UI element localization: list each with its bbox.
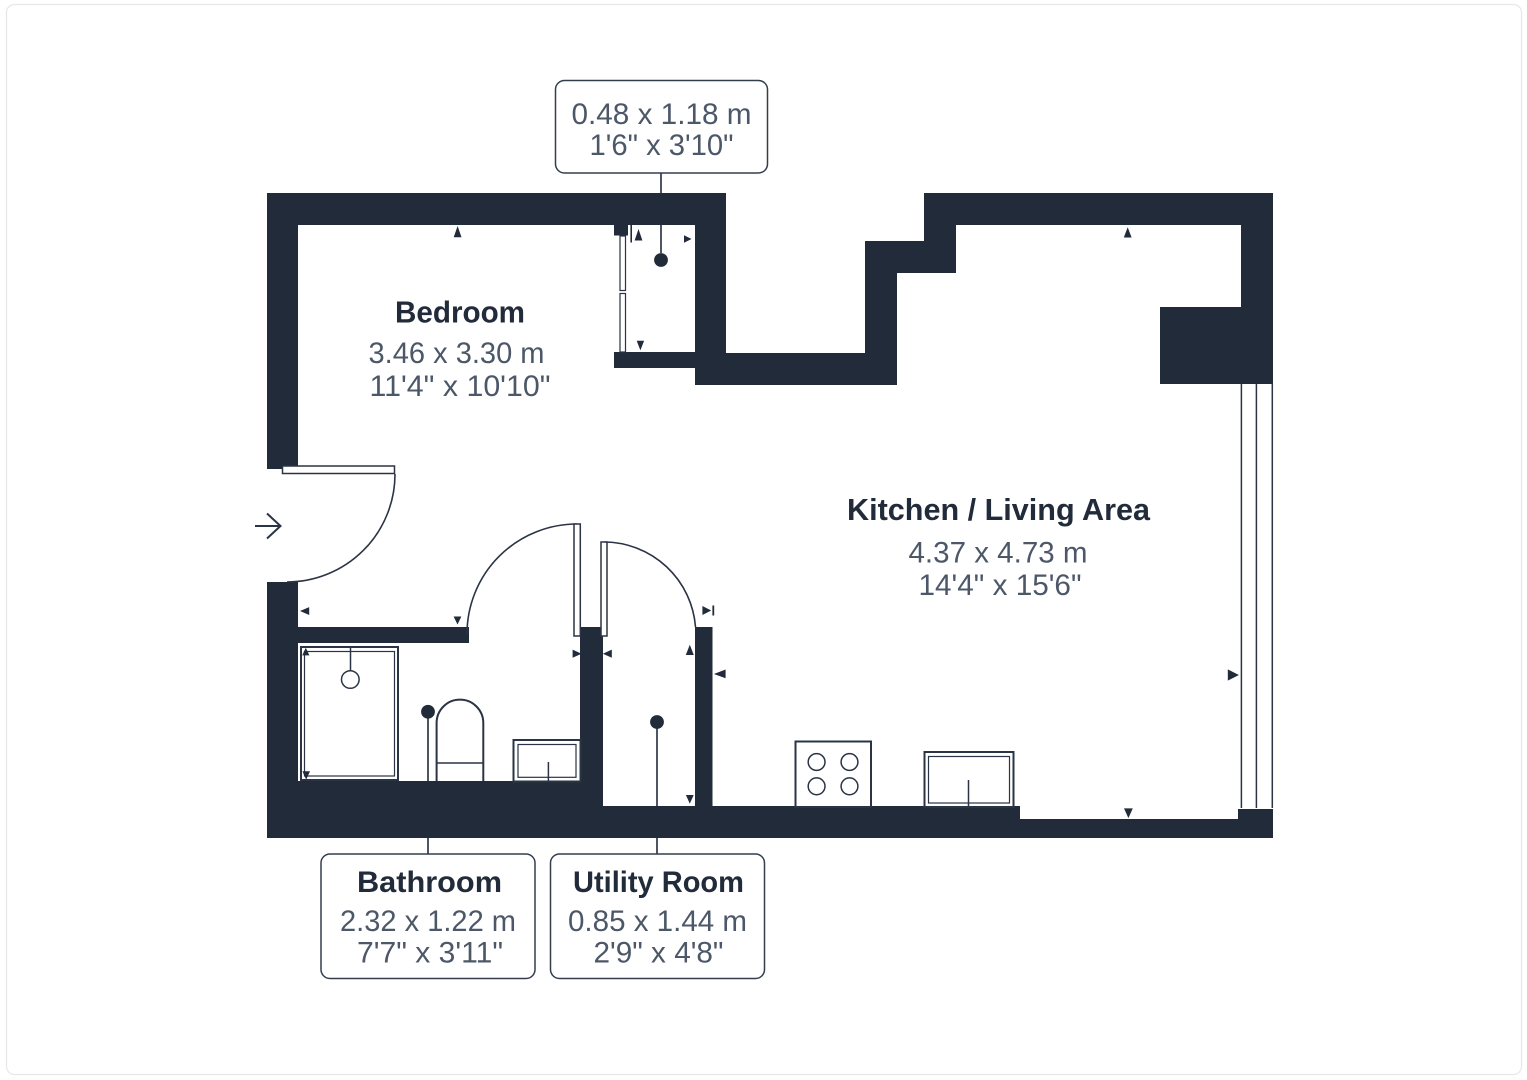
svg-text:1'6" x 3'10": 1'6" x 3'10" [590,129,734,162]
svg-text:3.46 x 3.30 m: 3.46 x 3.30 m [369,337,545,370]
svg-text:11'4" x 10'10": 11'4" x 10'10" [370,370,551,403]
svg-text:7'7" x 3'11": 7'7" x 3'11" [357,937,503,970]
svg-text:Bedroom: Bedroom [395,295,525,330]
svg-text:Kitchen / Living Area: Kitchen / Living Area [847,492,1151,527]
svg-text:Bathroom: Bathroom [357,866,502,899]
svg-text:2'9" x 4'8": 2'9" x 4'8" [594,937,724,970]
svg-text:2.32 x 1.22 m: 2.32 x 1.22 m [340,905,516,938]
svg-text:0.85 x 1.44 m: 0.85 x 1.44 m [568,905,747,938]
svg-text:4.37 x 4.73 m: 4.37 x 4.73 m [909,537,1088,570]
svg-text:Utility Room: Utility Room [573,866,744,899]
svg-text:0.48 x 1.18 m: 0.48 x 1.18 m [572,98,752,131]
svg-text:14'4" x 15'6": 14'4" x 15'6" [919,569,1082,602]
